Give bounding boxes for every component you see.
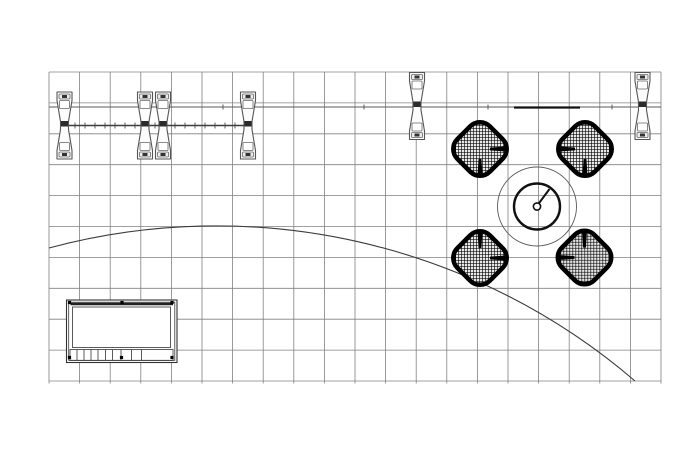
stool-waist-mark [142, 121, 149, 127]
stool-waist-mark [414, 102, 421, 108]
fastener-dot [120, 356, 123, 359]
lounge-chair [447, 225, 512, 290]
stool-chair [635, 73, 650, 140]
fastener-dot [170, 301, 173, 304]
stool-waist-mark [639, 102, 646, 108]
storage-counter [67, 300, 178, 363]
floor-plan-canvas [0, 0, 700, 450]
cocktail-table [498, 167, 577, 246]
stool-chair [410, 73, 425, 140]
counter-outer-edge [67, 300, 178, 363]
fastener-dot [170, 356, 173, 359]
fastener-dot [68, 301, 71, 304]
fastener-dot [120, 301, 123, 304]
stool-waist-mark [245, 121, 252, 127]
document-page [0, 0, 700, 450]
lounge-chair [552, 116, 617, 181]
lounge-chair [552, 225, 617, 290]
counter-rail [61, 123, 249, 129]
stool-waist-mark [160, 121, 167, 127]
stool-waist-mark [61, 121, 68, 127]
table-spoke [538, 189, 550, 205]
table-hub [533, 203, 540, 210]
lounge-chair [447, 116, 512, 181]
fastener-dot [68, 356, 71, 359]
